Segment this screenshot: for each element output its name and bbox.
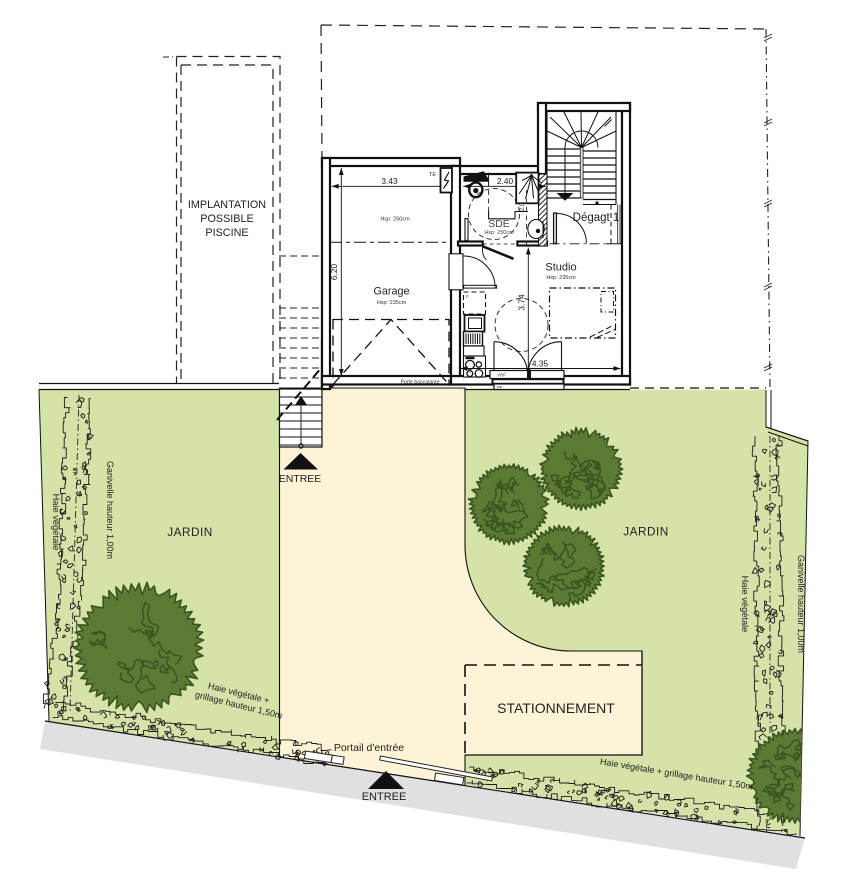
svg-text:SDE: SDE [488, 218, 510, 230]
svg-text:2.0: 2.0 [520, 202, 526, 211]
svg-text:Ganivelle hauteur 1,00m: Ganivelle hauteur 1,00m [105, 461, 115, 559]
svg-text:6.20: 6.20 [329, 264, 339, 281]
svg-text:Dégagt 1: Dégagt 1 [573, 212, 620, 224]
svg-text:JARDIN: JARDIN [167, 525, 213, 539]
svg-text:TE: TE [429, 172, 436, 178]
svg-text:Ganivelle hauteur 1,00m: Ganivelle hauteur 1,00m [796, 555, 806, 653]
svg-text:Haie végétale: Haie végétale [51, 494, 61, 551]
svg-text:ENTREE: ENTREE [362, 791, 407, 803]
svg-text:STATIONNEMENT: STATIONNEMENT [497, 700, 615, 716]
svg-text:2.40: 2.40 [497, 176, 514, 186]
svg-text:Hsp: 235cm: Hsp: 235cm [546, 275, 576, 281]
svg-text:Hsp: 250cm: Hsp: 250cm [484, 230, 514, 236]
svg-text:VRF: VRF [497, 373, 506, 378]
svg-text:4.35: 4.35 [532, 359, 549, 369]
svg-text:Hsp: 235cm: Hsp: 235cm [377, 300, 407, 306]
svg-text:Garage: Garage [373, 286, 409, 298]
svg-text:JARDIN: JARDIN [623, 525, 669, 539]
svg-text:PF: PF [497, 385, 503, 390]
svg-text:F: F [466, 294, 469, 299]
svg-text:3.43: 3.43 [381, 176, 398, 186]
svg-text:Studio: Studio [545, 262, 576, 274]
svg-text:Portail d'entrée: Portail d'entrée [334, 742, 404, 754]
svg-text:Porte basculante: Porte basculante [401, 380, 440, 386]
svg-text:Hsp: 250cm: Hsp: 250cm [380, 217, 410, 223]
svg-text:IMPLANTATION: IMPLANTATION [188, 199, 266, 211]
svg-text:Haie végétale: Haie végétale [740, 576, 750, 633]
svg-text:PISCINE: PISCINE [205, 227, 248, 239]
svg-text:3.74: 3.74 [517, 294, 527, 311]
svg-text:POSSIBLE: POSSIBLE [200, 213, 253, 225]
svg-text:ENTREE: ENTREE [279, 473, 322, 485]
